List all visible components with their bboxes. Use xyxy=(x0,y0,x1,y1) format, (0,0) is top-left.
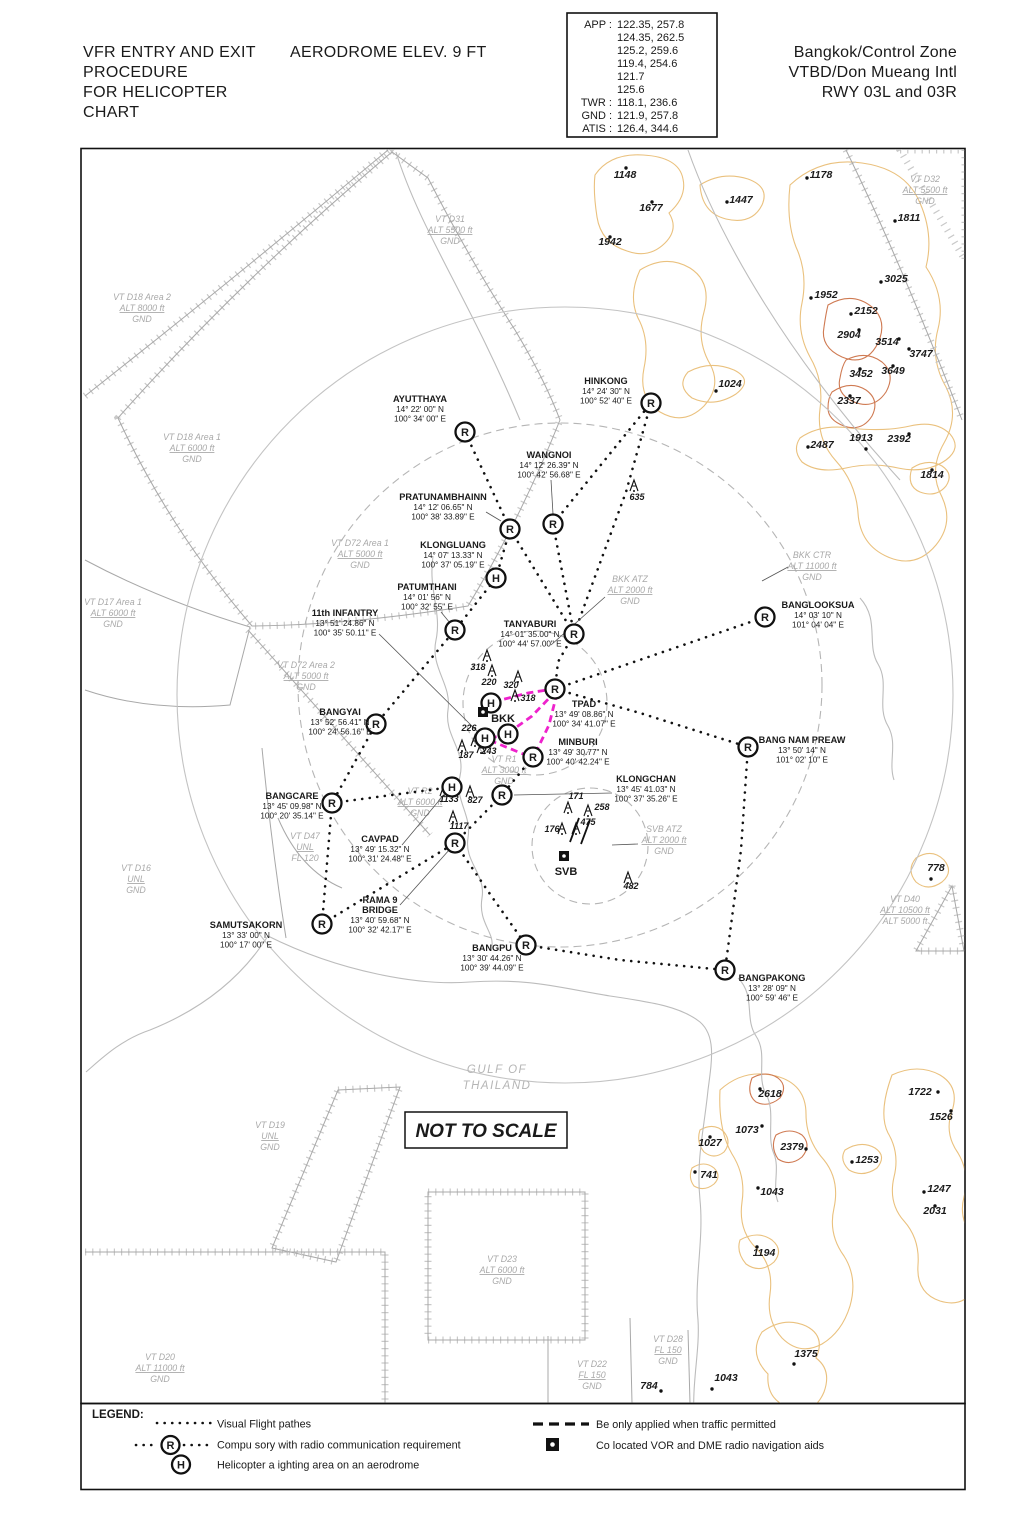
vor-dme-icon xyxy=(550,1442,555,1447)
legend-item-label: Helicopter a ighting area on an aerodrom… xyxy=(217,1460,419,1472)
spot-elevation-1375: 1375 xyxy=(792,1348,818,1366)
airspace-label-line: VT D28 xyxy=(653,1334,683,1344)
obstacle-icon xyxy=(564,802,572,813)
airspace-label-vt-d16: VT D16UNLGND xyxy=(121,863,151,895)
spot-elevation-1043: 1043 xyxy=(710,1372,738,1391)
spot-elevation-2904: 2904 xyxy=(836,328,861,341)
spot-elevation-3452: 3452 xyxy=(849,367,873,380)
spot-elevation-value: 1253 xyxy=(855,1154,879,1166)
obstacle-icon xyxy=(483,650,491,661)
spot-elevation-value: 1375 xyxy=(794,1348,818,1360)
spot-elevation-value: 3649 xyxy=(881,365,905,377)
waypoint-pratunambhainn: RPRATUNAMBHAINN14° 12' 06.65" N100° 38' … xyxy=(399,492,519,539)
symbol-letter: R xyxy=(721,965,729,977)
airspace-label-line: UNL xyxy=(296,842,314,852)
spot-elevation-1073: 1073 xyxy=(735,1124,763,1136)
spot-dot xyxy=(879,280,882,283)
legend-item-label: Compu sory with radio communication requ… xyxy=(217,1440,461,1452)
frequency-label: APP : xyxy=(584,19,612,31)
spot-elevation-value: 1194 xyxy=(753,1247,776,1259)
airspace-label-line: ALT 3000 ft xyxy=(481,765,527,775)
airspace-label-line: BKK ATZ xyxy=(612,574,648,584)
frequency-value: 118.1, 236.6 xyxy=(617,97,677,109)
spot-elevation-741: 741 xyxy=(693,1169,718,1181)
waypoint-latitude: 14° 07' 13.33" N xyxy=(423,551,482,560)
obstacle-318: 318 xyxy=(470,650,491,672)
spot-dot xyxy=(809,296,812,299)
waypoint-tanyaburi: RTANYABURI14° 01' 35.00" N100° 44' 57.00… xyxy=(498,619,583,649)
waypoint-latitude: 13° 45' 41.03" N xyxy=(616,785,675,794)
airport-title-line: Bangkok/Control Zone xyxy=(794,44,957,61)
airspace-label-line: VT D31 xyxy=(435,214,465,224)
waypoint-latitude: 14° 22' 00" N xyxy=(396,405,444,414)
spot-elevation-1814: 1814 xyxy=(920,468,944,481)
spot-dot xyxy=(806,445,809,448)
waypoint-banglooksua: RBANGLOOKSUA14° 03' 10" N101° 04' 04" E xyxy=(756,600,855,630)
spot-dot xyxy=(725,200,728,203)
waypoint-latitude: 13° 49' 30.77" N xyxy=(548,748,607,757)
spot-elevation-value: 1811 xyxy=(898,212,921,224)
airspace-label-line: FL 150 xyxy=(578,1370,605,1380)
airspace-label-line: VT D17 Area 1 xyxy=(84,597,142,607)
obstacle-elevation: 482 xyxy=(622,881,638,891)
spot-dot xyxy=(804,1147,807,1150)
waypoint-latitude: 13° 33' 00" N xyxy=(222,931,270,940)
legend-item-label: Be only applied when traffic permitted xyxy=(596,1419,776,1431)
waypoint-name: BANGLOOKSUA xyxy=(782,600,855,610)
spot-elevation-2152: 2152 xyxy=(849,305,878,317)
spot-elevation-value: 1677 xyxy=(639,202,664,214)
waypoint-name: RAMA 9 xyxy=(363,895,398,905)
spot-elevation-value: 741 xyxy=(700,1169,718,1181)
airspace-label-line: GND xyxy=(150,1374,170,1384)
airspace-labels: VT D31ALT 5500 ftGNDVT D32ALT 5500 ftGND… xyxy=(84,174,948,1391)
waypoint-longitude: 100° 20' 35.14" E xyxy=(260,812,324,821)
spot-elevation-value: 2618 xyxy=(757,1088,782,1100)
airspace-label-vt-d22: VT D22FL 150GND xyxy=(577,1359,607,1391)
airspace-label-line: ALT 5500 ft xyxy=(902,185,948,195)
airspace-label-vt-d18-area-2: VT D18 Area 2ALT 8000 ftGND xyxy=(113,292,171,324)
waypoint-name: BRIDGE xyxy=(362,905,398,915)
waypoint-ayutthaya: RAYUTTHAYA14° 22' 00" N100° 34' 00" E xyxy=(393,394,475,442)
navaid-id: BKK xyxy=(491,713,515,725)
airspace-label-line: BKK CTR xyxy=(793,550,832,560)
waypoint-name: 11th INFANTRY xyxy=(312,608,379,618)
obstacle-elevation: 258 xyxy=(593,802,609,812)
airspace-label-line: ALT 6000 ft xyxy=(479,1265,525,1275)
airspace-label-line: GND xyxy=(802,572,822,582)
airspace-label-line: ALT 10500 ft xyxy=(879,905,930,915)
frequency-value: 126.4, 344.6 xyxy=(617,123,678,135)
leader-line xyxy=(379,634,478,732)
symbol-letter: R xyxy=(498,790,506,802)
waypoint-latitude: 14° 12' 06.65" N xyxy=(413,503,472,512)
airport-title-line: RWY 03L and 03R xyxy=(822,84,957,101)
waypoint-latitude: 13° 30' 44.26" N xyxy=(462,954,521,963)
waypoint-name: TANYABURI xyxy=(504,619,557,629)
waypoint-bangpu: RBANGPU13° 30' 44.26" N100° 39' 44.09" E xyxy=(460,936,535,973)
airspace-label-bkk-ctr: BKK CTRALT 11000 ftGND xyxy=(786,550,837,582)
symbol-letter: H xyxy=(448,782,456,794)
obstacle-320: 320 xyxy=(503,671,522,690)
spot-elevation-3025: 3025 xyxy=(879,273,908,285)
spot-elevation-1178: 1178 xyxy=(805,169,832,181)
spot-elevation-value: 1043 xyxy=(714,1372,738,1384)
airspace-label-line: GND xyxy=(654,846,674,856)
chart-title-line: CHART xyxy=(83,104,139,121)
control-zone-rings xyxy=(177,307,953,1083)
spot-dot xyxy=(710,1387,713,1390)
symbol-letter: H xyxy=(492,573,500,585)
waypoint-samutsakorn: RSAMUTSAKORN13° 33' 00" N100° 17' 00" E xyxy=(210,915,332,950)
airspace-label-line: GND xyxy=(260,1142,280,1152)
waypoint-wangnoi: RWANGNOI14° 12' 26.39" N100° 42' 56.68" … xyxy=(517,450,581,534)
obstacle-482: 482 xyxy=(622,872,638,891)
waypoint-latitude: 13° 40' 59.68" N xyxy=(350,916,409,925)
airspace-label-line: GND xyxy=(582,1381,602,1391)
spot-elevation-value: 1027 xyxy=(698,1137,723,1149)
airspace-label-line: ALT 11000 ft xyxy=(786,561,837,571)
airspace-label-line: ALT 2000 ft xyxy=(641,835,687,845)
waypoint-name: BANG NAM PREAW xyxy=(759,735,846,745)
obstacle-dot xyxy=(575,833,577,835)
airspace-label-line: VT D23 xyxy=(487,1254,517,1264)
symbol-letter: R xyxy=(318,919,326,931)
waypoint-latitude: 13° 28' 09" N xyxy=(748,984,796,993)
airspace-label-line: ALT 6000 ft xyxy=(169,443,215,453)
spot-dot xyxy=(849,312,852,315)
spot-dot xyxy=(714,389,717,392)
spot-elevation-value: 1722 xyxy=(908,1086,932,1098)
waypoint-name: HINKONG xyxy=(584,376,627,386)
airspace-label-line: GND xyxy=(492,1276,512,1286)
obstacle-elevation: 320 xyxy=(503,680,518,690)
spot-elevation-2379: 2379 xyxy=(779,1141,807,1153)
airspace-label-line: VT D72 Area 2 xyxy=(277,660,335,670)
waypoint-name: BANGPAKONG xyxy=(739,973,806,983)
waypoint-cavpad: HCAVPAD13° 49' 15.32" N100° 31' 24.48" E xyxy=(348,778,461,864)
obstacle-elevation: 176 xyxy=(544,824,560,834)
rivers-coastline xyxy=(86,150,900,1418)
not-to-scale-box: NOT TO SCALE xyxy=(405,1112,567,1148)
airspace-label-line: FL 150 xyxy=(654,1345,681,1355)
spot-elevation-2392: 2392 xyxy=(886,432,911,445)
waypoint-latitude: 14° 01' 56" N xyxy=(403,593,451,602)
obstacle-dot xyxy=(486,660,488,662)
obstacle-elevation: 1117 xyxy=(450,821,470,831)
spot-elevation-1027: 1027 xyxy=(698,1135,723,1149)
waypoint-latitude: 14° 24' 30" N xyxy=(582,387,630,396)
airspace-label-line: ALT 5000 ft xyxy=(882,916,928,926)
waypoint-bang-nam-preaw: RBANG NAM PREAW13° 50' 14" N101° 02' 10"… xyxy=(739,735,846,765)
frequency-value: 121.9, 257.8 xyxy=(617,110,678,122)
spot-elevation-value: 1148 xyxy=(614,169,637,181)
spot-elevation-value: 1247 xyxy=(927,1183,952,1195)
airspace-label-line: GND xyxy=(132,314,152,324)
obstacle-icon xyxy=(488,665,496,676)
waypoint-name: BANGYAI xyxy=(319,707,361,717)
frequency-value: 119.4, 254.6 xyxy=(617,58,677,70)
obstacle-elevation: 318 xyxy=(520,693,535,703)
frequency-value: 124.35, 262.5 xyxy=(617,32,684,44)
spot-elevation-1811: 1811 xyxy=(893,212,920,224)
obstacle-176: 176 xyxy=(544,823,566,835)
spot-elevation-value: 3514 xyxy=(875,336,899,348)
obstacle-elevation: 635 xyxy=(629,492,645,502)
spot-elevation-value: 1814 xyxy=(920,469,944,481)
airspace-label-line: SVB ATZ xyxy=(646,824,682,834)
waypoint-bangyai: RBANGYAI13° 52' 56.41" N100° 24' 56.16" … xyxy=(308,707,385,737)
airspace-label-line: GND xyxy=(410,808,430,818)
gulf-of-thailand-label: GULF OF xyxy=(467,1064,527,1076)
obstacle-elevation: 827 xyxy=(467,795,483,805)
airspace-label-line: VT D19 xyxy=(255,1120,285,1130)
spot-dot xyxy=(922,1190,925,1193)
obstacle-1117: 1117 xyxy=(449,811,469,831)
airspace-label-line: GND xyxy=(440,236,460,246)
obstacle-258: 258 xyxy=(584,802,610,817)
spot-elevation-1194: 1194 xyxy=(753,1245,776,1259)
legend-title: LEGEND: xyxy=(92,1409,144,1421)
symbol-letter: R xyxy=(529,752,537,764)
spot-elevation-784: 784 xyxy=(640,1380,662,1393)
waypoint-longitude: 100° 32' 42.17" E xyxy=(348,926,412,935)
airspace-label-vt-d19: VT D19UNLGND xyxy=(255,1120,285,1152)
waypoint-longitude: 100° 39' 44.09" E xyxy=(460,964,524,973)
spot-dot xyxy=(792,1362,795,1365)
obstacle-elevation: 171 xyxy=(568,791,583,801)
spot-elevation-1942: 1942 xyxy=(598,235,622,248)
spot-elevation-value: 3452 xyxy=(849,368,873,380)
airspace-label-vt-d17-area-1: VT D17 Area 1ALT 6000 ftGND xyxy=(84,597,142,629)
waypoint-longitude: 100° 38' 33.89" E xyxy=(411,513,475,522)
map-content: VT D31ALT 5500 ftGNDVT D32ALT 5500 ftGND… xyxy=(84,150,982,1418)
spot-elevation-1148: 1148 xyxy=(614,166,637,181)
leader-line xyxy=(514,793,612,795)
spot-elevation-value: 1526 xyxy=(929,1111,953,1123)
waypoint-name: MINBURI xyxy=(558,737,597,747)
waypoint-minburi: RMINBURI13° 49' 30.77" N100° 40' 42.24" … xyxy=(524,737,611,767)
airspace-label-vt-d72-area-2: VT D72 Area 2ALT 5000 ftGND xyxy=(277,660,335,692)
frequency-label: GND : xyxy=(581,110,612,122)
legend-item-label: Co located VOR and DME radio navigation … xyxy=(596,1440,825,1452)
airspace-label-line: GND xyxy=(620,596,640,606)
obstacle-635: 635 xyxy=(629,480,645,502)
obstacle-dot xyxy=(567,812,569,814)
helipad-letter: H xyxy=(177,1459,185,1471)
frequency-list: APP :122.35, 257.8124.35, 262.5125.2, 25… xyxy=(581,19,684,135)
airspace-label-line: VT D40 xyxy=(890,894,920,904)
airspace-label-vt-d28: VT D28FL 150GND xyxy=(653,1334,683,1366)
symbol-letter: R xyxy=(551,684,559,696)
header: VFR ENTRY AND EXIT PROCEDURE FOR HELICOP… xyxy=(83,13,957,137)
airspace-label-line: GND xyxy=(658,1356,678,1366)
airspace-label-line: ALT 8000 ft xyxy=(119,303,165,313)
frequency-value: 125.6 xyxy=(617,84,645,96)
waypoint-name: KLONGCHAN xyxy=(616,774,676,784)
waypoint-longitude: 100° 42' 56.68" E xyxy=(517,471,581,480)
spot-elevation-1024: 1024 xyxy=(714,378,742,393)
spot-dot xyxy=(805,176,808,179)
legend: LEGEND: Visual Flight pathes R Compu sor… xyxy=(81,1404,965,1490)
symbol-letter: R xyxy=(761,612,769,624)
airspace-label-line: ALT 5000 ft xyxy=(337,549,383,559)
chart-canvas: VFR ENTRY AND EXIT PROCEDURE FOR HELICOP… xyxy=(0,0,1033,1514)
airspace-label-line: VT D47 xyxy=(290,831,321,841)
airspace-label-line: GND xyxy=(350,560,370,570)
spot-elevation-1952: 1952 xyxy=(809,289,838,301)
airspace-label-line: VT D18 Area 1 xyxy=(163,432,221,442)
not-to-scale-label: NOT TO SCALE xyxy=(415,1121,557,1142)
spot-elevation-1043: 1043 xyxy=(756,1186,784,1198)
spot-elevation-value: 1952 xyxy=(814,289,838,301)
waypoint-longitude: 100° 31' 24.48" E xyxy=(348,855,412,864)
leader-line xyxy=(486,512,501,521)
symbol-letter: R xyxy=(647,398,655,410)
frequency-value: 121.7 xyxy=(617,71,645,83)
spot-dot xyxy=(760,1124,763,1127)
spot-dot xyxy=(864,447,867,450)
obstacle-dot xyxy=(474,745,476,747)
obstacle-icon xyxy=(584,805,592,816)
airspace-label-line: UNL xyxy=(261,1131,279,1141)
spot-elevation-value: 2337 xyxy=(836,395,862,407)
helicopter-vfr-chart-page: VFR ENTRY AND EXIT PROCEDURE FOR HELICOP… xyxy=(0,0,1033,1514)
airspace-label-line: GND xyxy=(494,776,514,786)
spot-dot xyxy=(893,219,896,222)
compulsory-letter: R xyxy=(167,1440,175,1452)
spot-elevation-value: 2904 xyxy=(836,329,861,341)
airspace-label-line: ALT 11000 ft xyxy=(134,1363,185,1373)
waypoint-11th-infantry: 11th INFANTRY13° 51' 24.86" N100° 35' 50… xyxy=(312,608,379,638)
waypoint-patumthani: RPATUMTHANI14° 01' 56" N100° 32' 55" E xyxy=(397,582,464,640)
airspace-label-vt-d23: VT D23ALT 6000 ftGND xyxy=(479,1254,525,1286)
visual-flight-path xyxy=(322,803,332,924)
spot-elevation-3649: 3649 xyxy=(881,364,905,377)
symbol-letter: R xyxy=(506,524,514,536)
airspace-label-vt-r1: VT R1ALT 3000 ftGND xyxy=(481,754,527,786)
airspace-label-vt-d18-area-1: VT D18 Area 1ALT 6000 ftGND xyxy=(163,432,221,464)
spot-elevation-2618: 2618 xyxy=(757,1087,782,1100)
chart-title-line: VFR ENTRY AND EXIT xyxy=(83,44,256,61)
spot-elevation-3747: 3747 xyxy=(907,347,934,360)
spot-dot xyxy=(936,1090,939,1093)
obstacle-elevation: 318 xyxy=(470,662,485,672)
airspace-label-line: VT D18 Area 2 xyxy=(113,292,171,302)
waypoint-latitude: 13° 49' 15.32" N xyxy=(350,845,409,854)
spot-elevation-value: 1024 xyxy=(718,378,742,390)
spot-elevation-value: 1913 xyxy=(849,432,873,444)
visual-flight-path xyxy=(725,747,748,970)
waypoint-longitude: 101° 04' 04" E xyxy=(792,621,844,630)
airspace-label-line: VT R2 xyxy=(408,786,433,796)
spot-elevation-value: 2392 xyxy=(886,433,911,445)
waypoint-klongchan: RKLONGCHAN13° 45' 41.03" N100° 37' 35.26… xyxy=(493,774,679,805)
airspace-label-vt-d40: VT D40ALT 10500 ftALT 5000 ft xyxy=(879,894,930,926)
airspace-label-line: ALT 6000 ft xyxy=(90,608,136,618)
waypoint-name: PRATUNAMBHAINN xyxy=(399,492,487,502)
visual-flight-paths xyxy=(322,403,765,970)
obstacle-827: 827 xyxy=(466,786,483,805)
airspace-label-line: ALT 5500 ft xyxy=(427,225,473,235)
symbol-letter: H xyxy=(481,733,489,745)
visual-flight-path xyxy=(526,945,725,970)
spot-elevation-2031: 2031 xyxy=(922,1204,947,1217)
obstacle-elevation: 226 xyxy=(460,723,477,733)
helipad-symbol: H xyxy=(499,725,518,744)
legend-item-label: Visual Flight pathes xyxy=(217,1419,312,1431)
symbol-letter: R xyxy=(372,719,380,731)
symbol-letter: R xyxy=(522,940,530,952)
spot-dot xyxy=(850,1160,853,1163)
helipad-symbol: H xyxy=(476,729,495,748)
spot-elevation-value: 778 xyxy=(927,862,945,874)
airspace-label-line: GND xyxy=(296,682,316,692)
spot-elevation-1247: 1247 xyxy=(922,1183,952,1195)
waypoint-longitude: 100° 44' 57.00" E xyxy=(498,640,562,649)
waypoint-hinkong: RHINKONG14° 24' 30" N100° 52' 40" E xyxy=(580,376,660,413)
spot-elevation-value: 3025 xyxy=(884,273,908,285)
spot-elevation-2337: 2337 xyxy=(836,394,862,407)
waypoint-latitude: 13° 45' 09.98" N xyxy=(262,802,321,811)
spot-elevation-value: 2379 xyxy=(779,1141,804,1153)
leader-line xyxy=(551,480,553,514)
obstacle-elevation: 220 xyxy=(480,677,496,687)
spot-elevation-1913: 1913 xyxy=(849,432,873,451)
airspace-label-line: FL 120 xyxy=(291,853,318,863)
spot-elevation-value: 2487 xyxy=(809,439,835,451)
waypoint-name: CAVPAD xyxy=(361,834,399,844)
obstacle-dot xyxy=(561,833,563,835)
waypoint-name: BANGPU xyxy=(472,943,512,953)
chart-title-line: PROCEDURE xyxy=(83,64,188,81)
spot-elevation-value: 2031 xyxy=(922,1205,947,1217)
waypoint-longitude: 100° 37' 05.19" E xyxy=(421,561,485,570)
spot-elevation-value: 1942 xyxy=(598,236,622,248)
airspace-label-line: VT D20 xyxy=(145,1352,175,1362)
symbol-letter: H xyxy=(504,729,512,741)
vor-dme-dot xyxy=(562,854,566,858)
waypoint-latitude: 14° 03' 10" N xyxy=(794,611,842,620)
leader-line xyxy=(762,567,788,581)
chart-title-line: FOR HELICOPTER xyxy=(83,84,228,101)
symbol-letter: R xyxy=(744,742,752,754)
waypoint-longitude: 100° 59' 46" E xyxy=(746,994,798,1003)
spot-elevation-1722: 1722 xyxy=(908,1086,939,1098)
spot-elevation-1677: 1677 xyxy=(639,200,664,214)
spot-elevation-778: 778 xyxy=(927,862,945,881)
waypoint-longitude: 100° 24' 56.16" E xyxy=(308,728,372,737)
spot-elevation-value: 3747 xyxy=(909,348,934,360)
symbol-letter: R xyxy=(570,629,578,641)
waypoint-name: KLONGLUANG xyxy=(420,540,486,550)
navaid-id: SVB xyxy=(555,866,578,878)
airport-title-line: VTBD/Don Mueang Intl xyxy=(788,64,957,81)
navaid-svb: SVB xyxy=(555,851,578,878)
waypoint-longitude: 100° 52' 40" E xyxy=(580,397,632,406)
airspace-label-vt-d20: VT D20ALT 11000 ftGND xyxy=(134,1352,185,1384)
waypoint-name: TPAD xyxy=(572,699,597,709)
spot-elevation-1253: 1253 xyxy=(850,1154,879,1166)
waypoint-longitude: 100° 37' 35.26" E xyxy=(614,795,678,804)
waypoint-name: SAMUTSAKORN xyxy=(210,920,283,930)
spot-elevation-3514: 3514 xyxy=(875,336,900,348)
gulf-of-thailand-label: THAILAND xyxy=(463,1080,532,1092)
leader-line xyxy=(441,612,450,623)
legend-box xyxy=(81,1404,965,1490)
airspace-label-line: VT D16 xyxy=(121,863,151,873)
airspace-label-line: GND xyxy=(182,454,202,464)
